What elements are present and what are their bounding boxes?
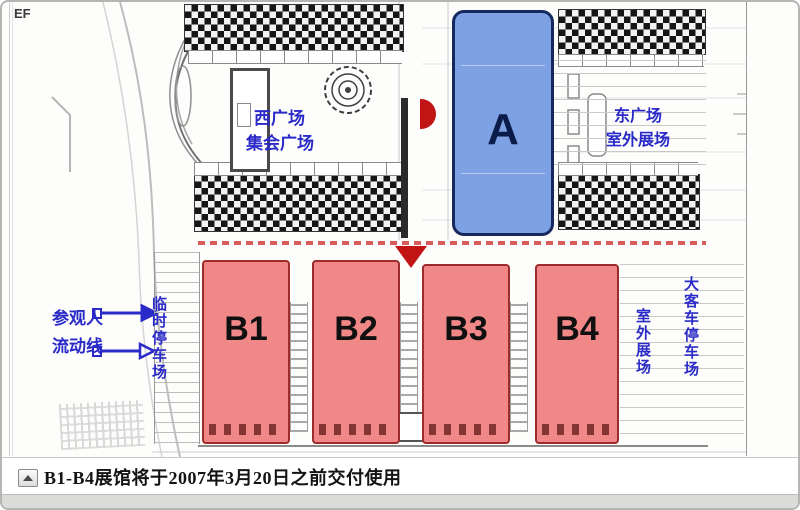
hall-b4: B4 [535, 264, 619, 444]
tree-block-midwest [194, 174, 404, 232]
visitor-flow-label-2: 流动线 [52, 332, 103, 357]
caption-bar: B1-B4展馆将于2007年3月20日之前交付使用 [2, 457, 798, 495]
hall-b2-label: B2 [314, 310, 398, 349]
fountain-icon [325, 67, 371, 113]
east-outdoor-label: 室外展场 [606, 126, 670, 150]
caption-collapse-button[interactable] [18, 469, 38, 487]
right-outdoor-label: 室外展场 [632, 308, 653, 408]
assembly-square-label: 集会广场 [246, 129, 314, 154]
hall-a-label: A [455, 105, 551, 155]
west-plaza-building-inner [237, 103, 251, 127]
hall-b1-docks [209, 424, 283, 435]
hall-b4-docks [542, 424, 612, 435]
bus-parking-label: 大客车停车场 [680, 276, 701, 410]
hall-b3: B3 [422, 264, 510, 444]
hall-b1-label: B1 [204, 310, 288, 349]
tree-block-mideast [558, 174, 700, 230]
center-wall [401, 98, 408, 238]
red-dashed-line [198, 241, 706, 245]
sketch-patch [59, 400, 145, 450]
central-corridor-structure [396, 412, 424, 442]
hall-b2-docks [319, 424, 393, 435]
bottom-strip [2, 494, 798, 509]
corridor-b1-b2 [290, 302, 308, 432]
stall-row-1 [188, 50, 402, 64]
hall-a-roofline [461, 173, 545, 174]
tree-block-northeast [558, 9, 706, 55]
temp-parking-label: 临时停车场 [148, 296, 169, 424]
visitor-flow-label-1: 参观人 [52, 304, 103, 329]
caption-text: B1-B4展馆将于2007年3月20日之前交付使用 [44, 464, 402, 490]
hall-b1: B1 [202, 260, 290, 444]
site-plan-frame: EF [0, 0, 800, 510]
corridor-b3-b4 [510, 302, 528, 432]
hall-a: A [452, 10, 554, 236]
hall-b3-docks [429, 424, 503, 435]
hall-b2: B2 [312, 260, 400, 444]
east-square-label: 东广场 [614, 102, 662, 126]
hall-a-roofline [461, 65, 545, 66]
west-square-label: 西广场 [254, 104, 305, 129]
stall-row-3 [194, 162, 402, 176]
hall-b4-label: B4 [537, 310, 617, 349]
triangle-up-icon [23, 475, 33, 481]
hall-b3-label: B3 [424, 310, 508, 349]
tree-block-northwest [184, 4, 404, 52]
